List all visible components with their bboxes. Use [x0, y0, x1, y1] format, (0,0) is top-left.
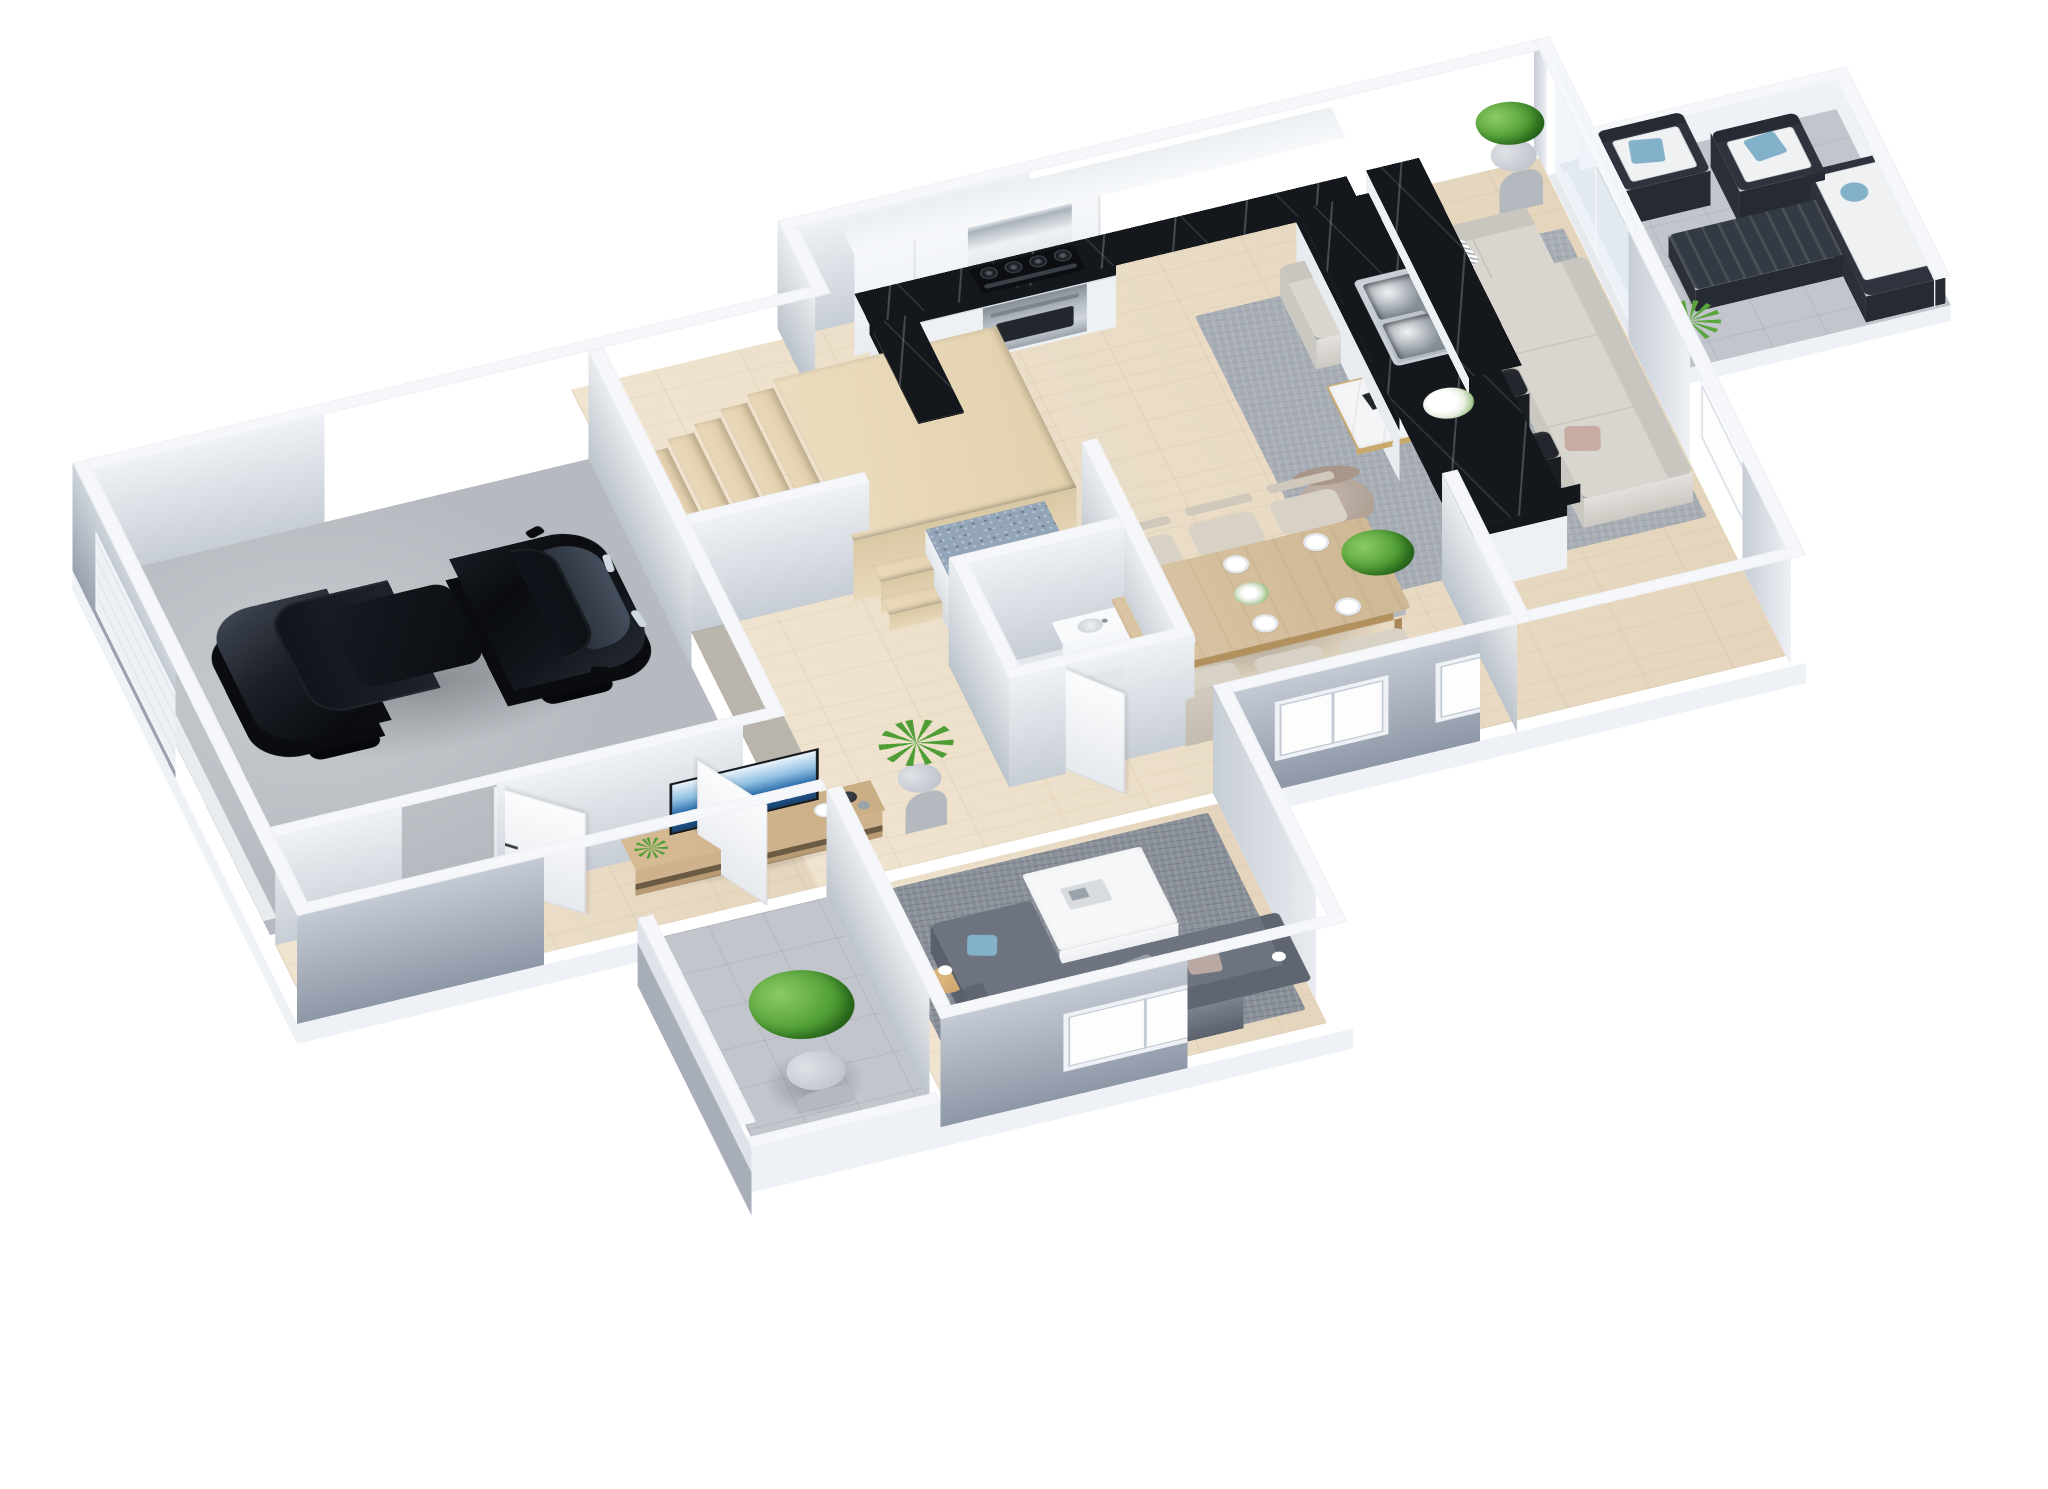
garage-window: [361, 390, 493, 471]
car-mirror: [591, 666, 609, 675]
family-window: [1064, 976, 1225, 1072]
door-handle: [505, 843, 518, 850]
wall: [1123, 635, 1195, 760]
window-mullion: [1492, 653, 1495, 705]
place-setting: [1220, 553, 1253, 576]
window-mullion: [1421, 99, 1424, 146]
burner: [1054, 250, 1071, 262]
window-mullion: [428, 408, 431, 450]
burner: [1029, 255, 1046, 267]
pillow: [1564, 426, 1601, 451]
centerpiece: [1230, 579, 1274, 608]
pillow: [1628, 138, 1666, 164]
place-setting: [1249, 612, 1282, 635]
burner: [980, 267, 997, 279]
entry-sidelight: [774, 806, 829, 888]
dining-window: [1275, 675, 1388, 761]
window-mullion: [1144, 998, 1147, 1049]
place-setting: [1300, 531, 1333, 554]
bar-end-face: [1527, 484, 1580, 579]
sofa-seam: [1512, 334, 1598, 356]
kitchen-window: [1359, 81, 1482, 164]
window-mullion: [1332, 692, 1335, 744]
burner: [1005, 261, 1022, 273]
console-vase: [856, 800, 871, 811]
sofa-seam: [1547, 406, 1633, 428]
place-setting: [1332, 595, 1365, 618]
floor-plan-render: [0, 0, 2048, 1489]
wall: [1009, 666, 1066, 787]
dining-window: [1436, 637, 1549, 723]
vanity-faucet: [1101, 618, 1109, 623]
pillow: [967, 935, 998, 956]
